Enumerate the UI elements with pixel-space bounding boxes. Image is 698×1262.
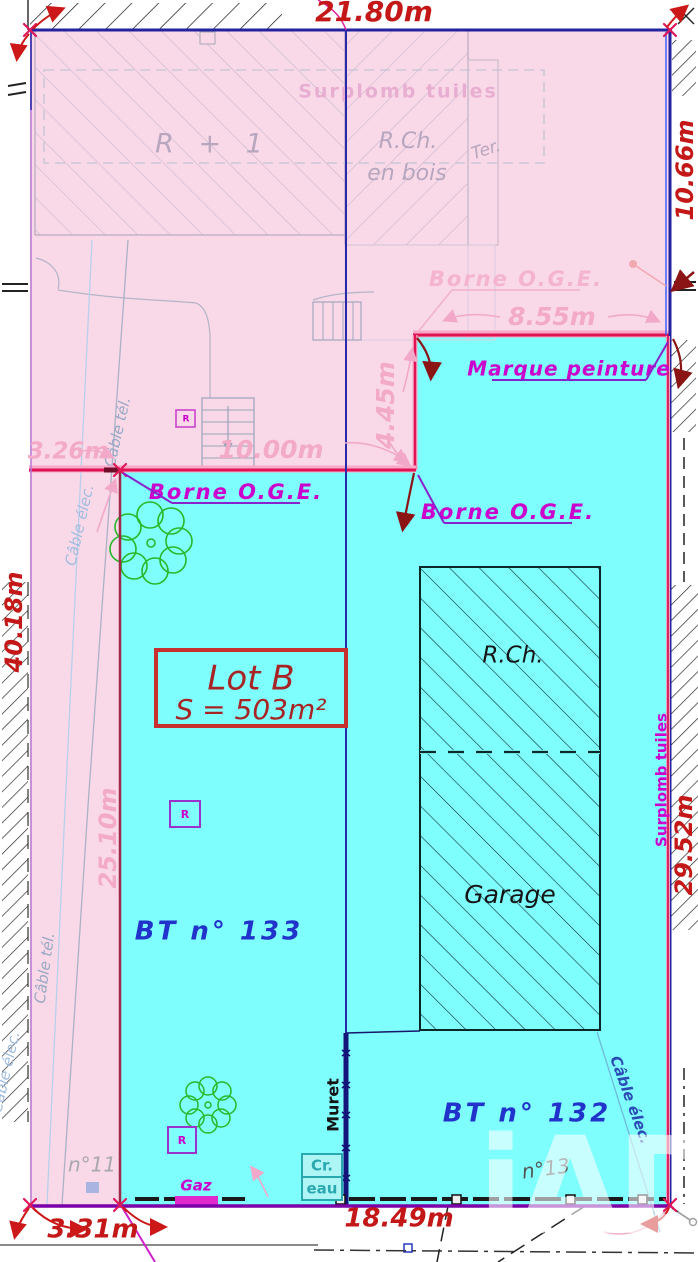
survey-plan-page: Surplomb tuiles Câble élec. Câble tél. C… bbox=[0, 0, 698, 1262]
water-meter-box: Cr. eau bbox=[302, 1154, 342, 1200]
garage-building: R.Ch. Garage bbox=[420, 567, 600, 1030]
svg-text:R: R bbox=[178, 1134, 187, 1147]
dim-step-width: 8.55m bbox=[508, 302, 596, 331]
parcel-bt133-label: BT n° 133 bbox=[135, 917, 303, 947]
gaz-label: Gaz bbox=[180, 1177, 211, 1195]
dim-mid-width: 10.00m bbox=[218, 435, 323, 464]
dim-step-height: 4.45m bbox=[371, 361, 400, 450]
rch-building-label: R.Ch. bbox=[482, 643, 543, 669]
dim-strip: 25.10m bbox=[94, 788, 122, 889]
rch-bois-label-1: R.Ch. bbox=[379, 129, 438, 154]
gaz-marker: Gaz bbox=[175, 1177, 218, 1206]
svg-text:R: R bbox=[181, 808, 190, 821]
surplomb-tuiles-right-label: Surplomb tuiles bbox=[653, 713, 671, 847]
muret-label: Muret bbox=[324, 1078, 343, 1132]
eau-label: eau bbox=[307, 1180, 338, 1198]
house-n11-label: n°11 bbox=[68, 1153, 116, 1177]
svg-text:Borne O.G.E.: Borne O.G.E. bbox=[429, 267, 603, 291]
lot-surface: S = 503m² bbox=[176, 693, 327, 726]
borne-dot-right bbox=[629, 260, 637, 268]
svg-text:Marque peinture: Marque peinture bbox=[467, 357, 671, 381]
surplomb-tuiles-top-label: Surplomb tuiles bbox=[298, 81, 498, 103]
watermark-logo: iAD bbox=[478, 1108, 698, 1262]
dim-top: 21.80m bbox=[315, 0, 433, 28]
dim-right-upper: 10.66m bbox=[671, 120, 698, 221]
survey-plan: Surplomb tuiles Câble élec. Câble tél. C… bbox=[0, 0, 698, 1262]
garage-label: Garage bbox=[464, 880, 556, 909]
cr-label: Cr. bbox=[311, 1157, 333, 1175]
dim-bottom-left: 3.31m bbox=[47, 1215, 138, 1245]
r-plus-1-label: R + 1 bbox=[155, 129, 271, 160]
dim-left-outer: 40.18m bbox=[0, 572, 28, 674]
house-11-marker bbox=[86, 1182, 99, 1193]
svg-text:Borne O.G.E.: Borne O.G.E. bbox=[149, 480, 323, 504]
dim-right-lower: 29.52m bbox=[670, 795, 698, 896]
rch-bois-label-2: en bois bbox=[367, 161, 446, 186]
svg-text:Borne O.G.E.: Borne O.G.E. bbox=[421, 500, 595, 524]
svg-text:R: R bbox=[183, 415, 190, 425]
dim-bottom: 18.49m bbox=[344, 1204, 453, 1234]
